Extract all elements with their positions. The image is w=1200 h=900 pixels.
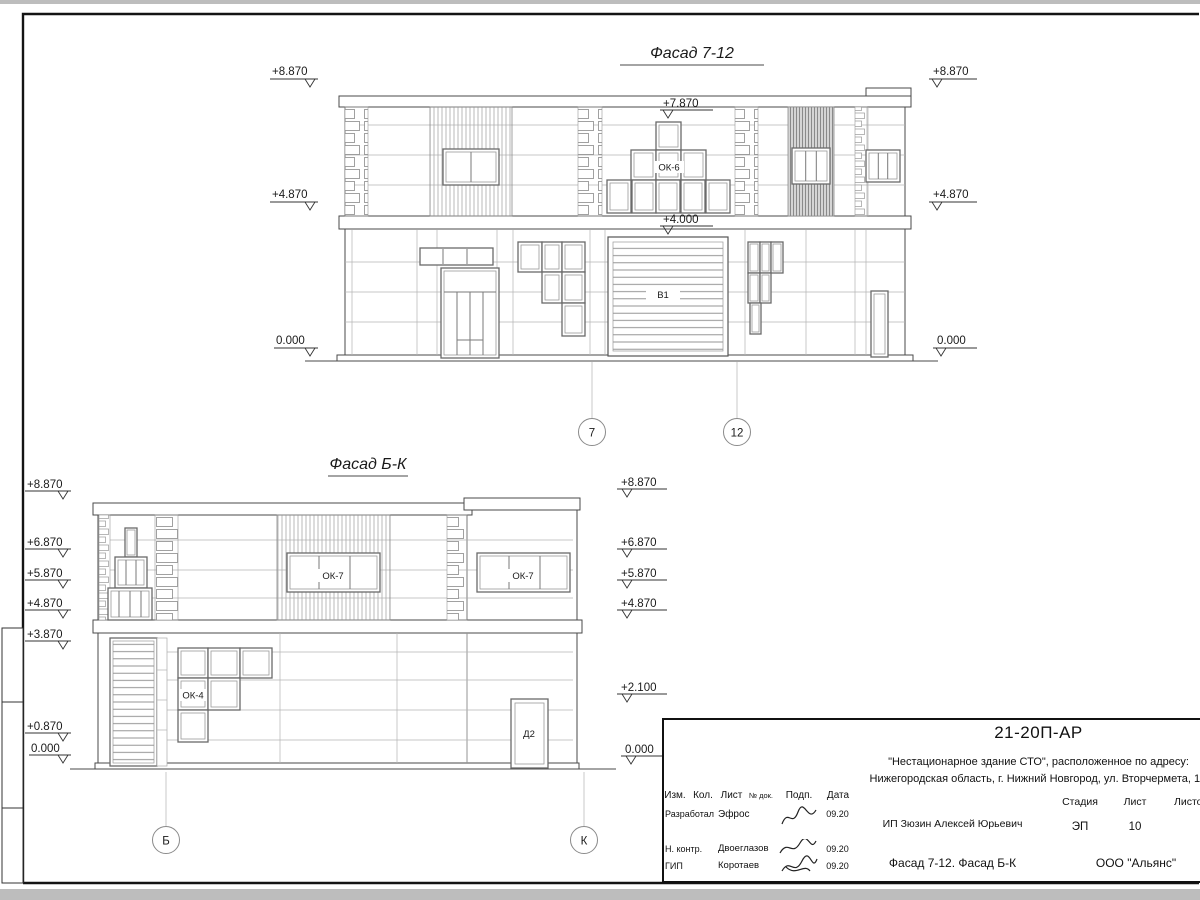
document-number: 21-20П-АР <box>855 718 1200 748</box>
sheets-label: Листов <box>1160 793 1200 810</box>
row-name-ncontrol: Двоеглазов <box>715 840 778 857</box>
project-name-line1: "Нестационарное здание СТО", расположенн… <box>888 754 1189 771</box>
mark-text: +8.870 <box>27 479 63 491</box>
marks-left-bk: +8.870 +6.870 +5.870 +4.870 +3.870 +0.87… <box>25 479 71 763</box>
mark-text: +0.870 <box>27 721 63 733</box>
mark-text: +8.870 <box>933 66 969 78</box>
mark-text: +3.870 <box>27 629 63 641</box>
facade-7-12: Фасад 7-12 <box>270 45 977 446</box>
mark-text: +4.870 <box>27 598 63 610</box>
row-date-ncontrol: 09.20 <box>820 840 855 857</box>
row-role-gip: ГИП <box>662 857 718 874</box>
mark-text: +4.870 <box>621 598 657 610</box>
project-name-line2: Нижегородская область, г. Нижний Новгоро… <box>870 771 1200 788</box>
gate-label-b1: В1 <box>657 290 669 301</box>
mark-text: +4.870 <box>933 189 969 201</box>
drawing-sheet: { "sheet": { "doc_number": "21-20П-АР", … <box>0 0 1200 900</box>
row-role-ncontrol: Н. контр. <box>662 840 718 857</box>
window-label-ok7-1: ОК-7 <box>322 571 343 582</box>
axis-bubbles-7-12: 7 12 <box>579 362 751 446</box>
axis-label: 7 <box>589 428 595 440</box>
col-kol: Кол. <box>688 786 718 804</box>
marks-right-bk: +8.870 +6.870 +5.870 +4.870 +2.100 0.000 <box>617 477 667 764</box>
door-d2: Д2 <box>511 699 548 768</box>
mark-text: +6.870 <box>27 537 63 549</box>
col-podp: Подп. <box>777 786 821 804</box>
row-date-developer: 09.20 <box>820 804 855 824</box>
sheet-label: Лист <box>1110 793 1160 810</box>
gate-b1: В1 <box>608 237 728 356</box>
roller-shutter <box>110 638 167 766</box>
title-block: 21-20П-АР "Нестационарное здание СТО", р… <box>662 718 1200 883</box>
mark-text: +6.870 <box>621 537 657 549</box>
mark-text: +5.870 <box>27 568 63 580</box>
mark-text: +7.870 <box>663 98 699 110</box>
axis-label: 12 <box>731 428 744 440</box>
col-izm: Изм. <box>662 786 688 804</box>
col-list: Лист <box>718 786 745 804</box>
stage-label: Стадия <box>1050 793 1110 810</box>
striped-panel-window <box>430 107 512 216</box>
company-name: ООО "Альянс" <box>1050 844 1200 881</box>
col-data: Дата <box>821 786 855 804</box>
col-ndok: № док. <box>745 786 777 804</box>
mark-text: +8.870 <box>621 477 657 489</box>
facade-b-k: Фасад Б-К <box>25 456 667 854</box>
row-name-gip: Коротаев <box>715 857 778 874</box>
window-label-ok7-2: ОК-7 <box>512 571 533 582</box>
client-name: ИП Зюзин Алексей Юрьевич <box>855 804 1050 844</box>
mark-text: 0.000 <box>937 335 966 347</box>
row-role-developer: Разработал <box>662 804 718 824</box>
axis-label: Б <box>162 836 170 848</box>
binding-margin-boxes <box>2 628 23 883</box>
door-label-d2: Д2 <box>523 729 535 740</box>
facade-b-k-title: Фасад Б-К <box>330 456 409 473</box>
mark-text: +4.000 <box>663 214 699 226</box>
window-label-ok6: ОК-6 <box>658 163 679 174</box>
marks-left: +8.870 +4.870 0.000 <box>270 66 318 356</box>
mark-text: +5.870 <box>621 568 657 580</box>
facade-7-12-title: Фасад 7-12 <box>650 45 734 62</box>
signature-developer <box>778 806 820 828</box>
window-label-ok4: ОК-4 <box>182 691 203 702</box>
mark-text: 0.000 <box>31 743 60 755</box>
marks-right: +8.870 +4.870 0.000 <box>929 66 977 356</box>
mark-text: +2.100 <box>621 682 657 694</box>
signature-ncontrol-gip <box>776 839 820 879</box>
axis-label: К <box>581 836 588 848</box>
sheet-number: 10 <box>1110 810 1160 844</box>
drawing-title: Фасад 7-12. Фасад Б-К <box>855 844 1050 881</box>
row-date-gip: 09.20 <box>820 857 855 874</box>
mark-text: 0.000 <box>625 744 654 756</box>
row-name-developer: Эфрос <box>715 804 778 824</box>
mark-text: +4.870 <box>272 189 308 201</box>
mark-text: 0.000 <box>276 335 305 347</box>
axis-bubbles-b-k: Б К <box>153 772 598 854</box>
stage-value: ЭП <box>1050 810 1110 844</box>
mark-text: +8.870 <box>272 66 308 78</box>
project-name: "Нестационарное здание СТО", расположенн… <box>855 748 1200 793</box>
